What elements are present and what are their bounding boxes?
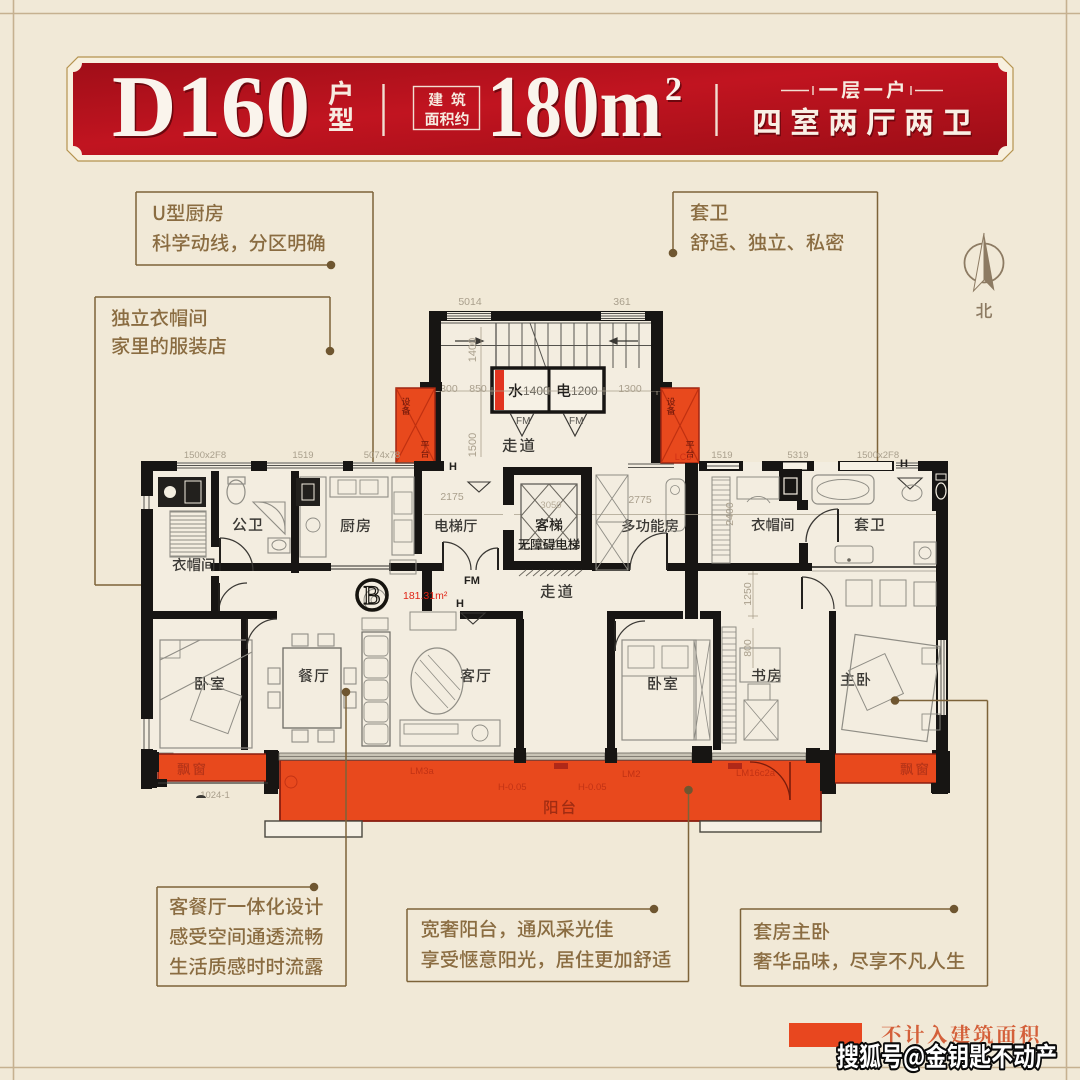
svg-text:FM: FM xyxy=(464,575,480,587)
svg-text:LM16c2a: LM16c2a xyxy=(736,768,776,779)
svg-text:2175: 2175 xyxy=(440,491,464,503)
svg-text:H-0.05: H-0.05 xyxy=(498,782,527,793)
svg-text:1500x2F8: 1500x2F8 xyxy=(184,450,226,461)
svg-text:3050: 3050 xyxy=(540,500,561,511)
svg-text:1250: 1250 xyxy=(742,582,754,606)
svg-text:1500x2F8: 1500x2F8 xyxy=(857,450,899,461)
svg-text:2: 2 xyxy=(665,71,682,108)
svg-text:1519: 1519 xyxy=(711,450,732,461)
svg-text:LC3: LC3 xyxy=(675,452,692,462)
svg-text:H: H xyxy=(449,461,457,473)
svg-text:LM3a: LM3a xyxy=(410,766,434,777)
svg-text:180m: 180m xyxy=(487,59,662,156)
svg-text:FM: FM xyxy=(516,416,530,427)
svg-text:5319: 5319 xyxy=(787,450,808,461)
svg-text:H-0.05: H-0.05 xyxy=(578,782,607,793)
svg-text:FM: FM xyxy=(569,416,583,427)
svg-text:H: H xyxy=(456,598,464,610)
svg-text:1024-1: 1024-1 xyxy=(200,790,230,801)
svg-text:850: 850 xyxy=(469,383,487,395)
svg-text:H: H xyxy=(900,458,908,470)
svg-text:D160: D160 xyxy=(112,59,310,156)
svg-text:1519: 1519 xyxy=(292,450,313,461)
svg-text:1500: 1500 xyxy=(467,433,479,457)
svg-text:B: B xyxy=(363,581,380,610)
svg-text:2775: 2775 xyxy=(628,494,652,506)
svg-text:1400: 1400 xyxy=(467,338,479,362)
svg-text:181.31m²: 181.31m² xyxy=(403,590,448,602)
svg-text:1300: 1300 xyxy=(618,383,642,395)
svg-text:2400: 2400 xyxy=(724,502,736,526)
svg-text:800: 800 xyxy=(742,639,754,657)
svg-text:5074x78: 5074x78 xyxy=(364,450,400,461)
svg-text:361: 361 xyxy=(613,296,631,308)
svg-text:LM2: LM2 xyxy=(622,769,640,780)
svg-text:5014: 5014 xyxy=(458,296,482,308)
